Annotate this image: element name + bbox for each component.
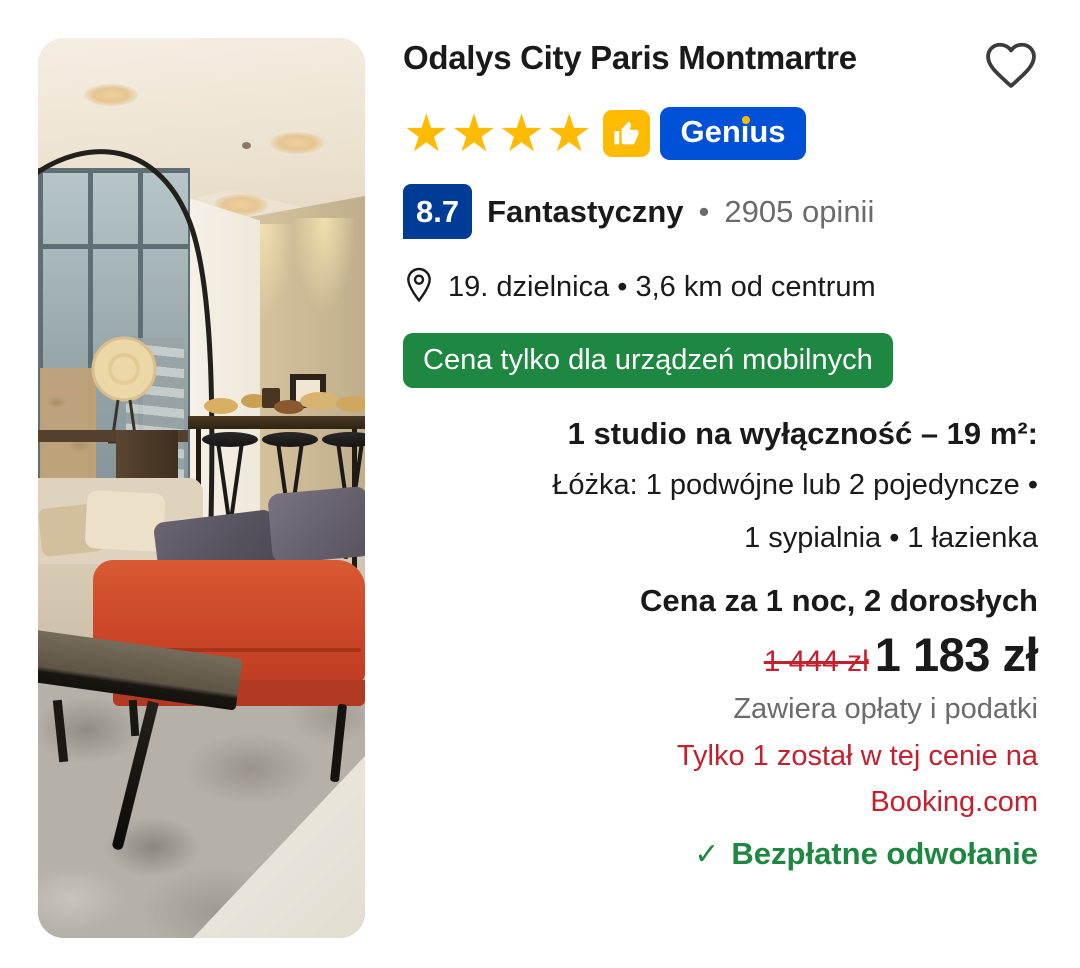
rating-row[interactable]: 8.7 Fantastyczny • 2905 opinii — [403, 184, 1038, 239]
genius-label: Genius — [680, 114, 785, 149]
heart-icon[interactable] — [984, 40, 1038, 95]
check-icon: ✓ — [694, 837, 719, 872]
free-cancellation-label: Bezpłatne odwołanie — [731, 836, 1038, 872]
location-text: 19. dzielnica • 3,6 km od centrum — [448, 271, 876, 304]
location-pin-icon — [403, 266, 435, 309]
hotel-card[interactable]: Odalys City Paris Montmartre ★★★★ Genius… — [0, 0, 1080, 968]
review-score-word: Fantastyczny — [487, 194, 683, 230]
price-section: Cena za 1 noc, 2 dorosłych 1 444 zł 1 18… — [403, 557, 1038, 872]
rooms-line: 1 sypialnia • 1 łazienka — [403, 520, 1038, 558]
current-price: 1 183 zł — [875, 627, 1038, 682]
hotel-info: Odalys City Paris Montmartre ★★★★ Genius… — [403, 38, 1038, 938]
title-row: Odalys City Paris Montmartre — [403, 38, 1038, 95]
genius-badge: Genius — [660, 107, 805, 160]
beds-line: Łóżka: 1 podwójne lub 2 pojedyncze • — [403, 467, 1038, 505]
review-count[interactable]: 2905 opinii — [724, 194, 874, 230]
room-details: 1 studio na wyłączność – 19 m²: Łóżka: 1… — [403, 416, 1038, 557]
review-score-badge[interactable]: 8.7 — [403, 184, 472, 239]
badges-row: ★★★★ Genius — [403, 107, 1038, 160]
room-headline[interactable]: 1 studio na wyłączność – 19 m²: — [403, 416, 1038, 452]
urgency-message-line1: Tylko 1 został w tej cenie na — [403, 741, 1038, 773]
breakfast-basket — [300, 392, 340, 410]
hotel-name[interactable]: Odalys City Paris Montmartre — [403, 38, 857, 78]
original-price: 1 444 zł — [764, 645, 869, 679]
free-cancellation-row: ✓ Bezpłatne odwołanie — [403, 836, 1038, 872]
thumbs-up-icon — [603, 110, 650, 157]
mobile-price-badge: Cena tylko dla urządzeń mobilnych — [403, 333, 893, 388]
sofa-pillow — [85, 490, 166, 552]
breakfast-basket — [336, 396, 365, 412]
price-row: 1 444 zł 1 183 zł — [403, 627, 1038, 682]
taxes-note: Zawiera opłaty i podatki — [403, 693, 1038, 726]
hotel-photo[interactable] — [38, 38, 365, 938]
separator-dot: • — [699, 194, 710, 230]
urgency-message-line2: Booking.com — [403, 786, 1038, 819]
bar-counter — [188, 416, 365, 429]
breakfast-basket — [204, 398, 238, 414]
location-row[interactable]: 19. dzielnica • 3,6 km od centrum — [403, 266, 1038, 309]
star-rating: ★★★★ — [403, 108, 593, 160]
price-conditions-label: Cena za 1 noc, 2 dorosłych — [403, 583, 1038, 619]
gray-cushion — [267, 486, 365, 564]
